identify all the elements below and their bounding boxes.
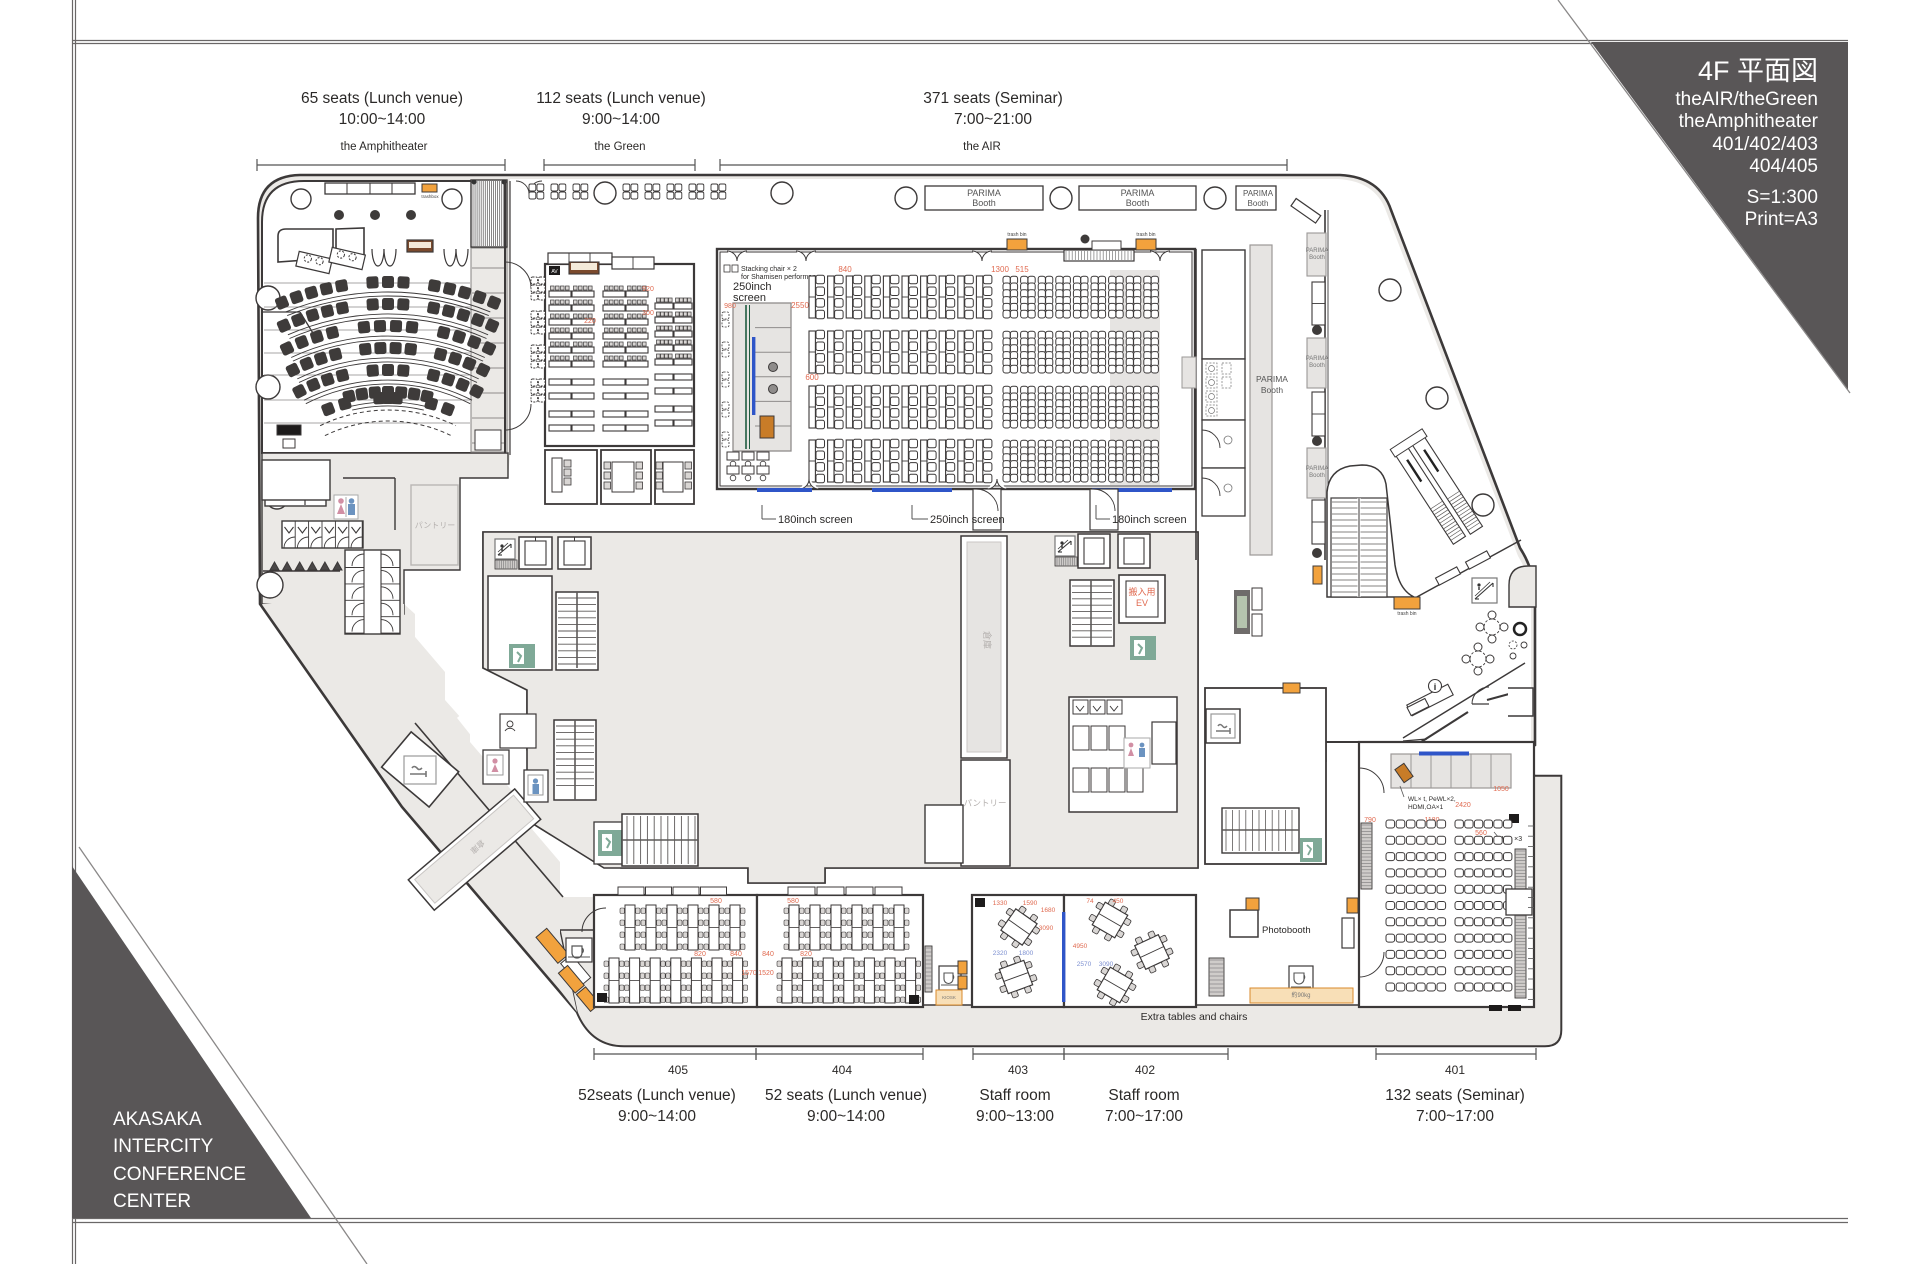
- svg-text:840: 840: [762, 951, 774, 958]
- svg-text:10:00~14:00: 10:00~14:00: [339, 111, 426, 128]
- svg-text:4950: 4950: [1073, 943, 1088, 950]
- svg-text:403: 403: [1008, 1063, 1028, 1077]
- svg-text:404/405: 404/405: [1749, 156, 1818, 177]
- svg-text:Stacking chair × 2: Stacking chair × 2: [741, 266, 797, 273]
- svg-text:Booth: Booth: [1309, 255, 1325, 261]
- svg-text:PARIMA: PARIMA: [1243, 189, 1274, 198]
- svg-text:9:00~14:00: 9:00~14:00: [618, 1108, 696, 1125]
- svg-text:trashbox: trashbox: [421, 194, 439, 199]
- svg-text:3090: 3090: [1039, 925, 1054, 932]
- svg-text:402: 402: [1135, 1063, 1155, 1077]
- svg-text:the Amphitheater: the Amphitheater: [341, 141, 428, 153]
- svg-text:倉庫: 倉庫: [982, 631, 993, 649]
- svg-text:2320: 2320: [993, 950, 1008, 957]
- svg-text:132 seats (Seminar): 132 seats (Seminar): [1385, 1087, 1525, 1104]
- svg-text:S=1:300: S=1:300: [1747, 187, 1818, 208]
- svg-text:EV: EV: [1136, 598, 1148, 608]
- svg-text:Booth: Booth: [972, 198, 996, 208]
- svg-text:401/402/403: 401/402/403: [1712, 134, 1818, 155]
- svg-text:パントリー: パントリー: [415, 521, 455, 530]
- svg-text:AKASAKA: AKASAKA: [113, 1109, 202, 1130]
- svg-text:1300: 1300: [991, 265, 1009, 274]
- svg-text:515: 515: [1015, 265, 1029, 274]
- svg-text:9:00~13:00: 9:00~13:00: [976, 1108, 1054, 1125]
- svg-text:7:00~21:00: 7:00~21:00: [954, 111, 1032, 128]
- svg-text:580: 580: [787, 898, 799, 905]
- svg-text:980: 980: [724, 303, 736, 310]
- svg-text:250inch screen: 250inch screen: [930, 514, 1005, 526]
- svg-text:screen: screen: [733, 292, 766, 304]
- svg-text:Booth: Booth: [1126, 198, 1150, 208]
- svg-text:1520: 1520: [758, 970, 774, 977]
- svg-text:3090: 3090: [1099, 961, 1114, 968]
- svg-text:trash bin: trash bin: [1397, 611, 1416, 617]
- svg-text:1590: 1590: [1023, 900, 1038, 907]
- svg-text:INTERCITY: INTERCITY: [113, 1136, 214, 1157]
- svg-text:1680: 1680: [1041, 907, 1056, 914]
- svg-text:PARIMA: PARIMA: [967, 188, 1001, 198]
- svg-text:Staff room: Staff room: [1108, 1087, 1179, 1104]
- svg-text:PARIMA: PARIMA: [1306, 356, 1329, 362]
- svg-text:Booth: Booth: [1261, 385, 1283, 395]
- svg-text:404: 404: [832, 1063, 852, 1077]
- svg-text:Booth: Booth: [1309, 473, 1325, 479]
- svg-text:820: 820: [694, 951, 706, 958]
- svg-text:PARIMA: PARIMA: [1256, 374, 1288, 384]
- svg-text:AV: AV: [551, 269, 558, 275]
- svg-text:1050: 1050: [1493, 786, 1509, 793]
- svg-text:401: 401: [1445, 1063, 1465, 1077]
- svg-text:PARIMA: PARIMA: [1306, 466, 1329, 472]
- svg-text:180inch screen: 180inch screen: [1112, 514, 1187, 526]
- svg-text:920: 920: [642, 286, 654, 293]
- svg-text:CONFERENCE: CONFERENCE: [113, 1164, 246, 1185]
- svg-text:7:00~17:00: 7:00~17:00: [1416, 1108, 1494, 1125]
- svg-text:74: 74: [1086, 898, 1094, 905]
- svg-text:112 seats (Lunch venue): 112 seats (Lunch venue): [536, 90, 705, 107]
- svg-text:4F 平面図: 4F 平面図: [1698, 56, 1818, 86]
- svg-text:2550: 2550: [791, 301, 809, 310]
- svg-text:theAmphitheater: theAmphitheater: [1679, 111, 1819, 132]
- svg-text:371 seats (Seminar): 371 seats (Seminar): [923, 90, 1063, 107]
- svg-text:2420: 2420: [1455, 802, 1471, 809]
- svg-text:the Green: the Green: [594, 141, 645, 153]
- svg-text:Booth: Booth: [1309, 363, 1325, 369]
- svg-text:300: 300: [642, 310, 654, 317]
- svg-text:HDMI,OA×1: HDMI,OA×1: [1408, 804, 1444, 811]
- svg-text:Print=A3: Print=A3: [1745, 209, 1818, 230]
- svg-text:7:00~17:00: 7:00~17:00: [1105, 1108, 1183, 1125]
- svg-text:trash bin: trash bin: [1136, 232, 1155, 238]
- svg-text:840: 840: [730, 951, 742, 958]
- svg-text:580: 580: [710, 898, 722, 905]
- svg-text:Photobooth: Photobooth: [1262, 925, 1311, 936]
- svg-text:52seats (Lunch venue): 52seats (Lunch venue): [578, 1087, 736, 1104]
- svg-text:1800: 1800: [1019, 950, 1034, 957]
- svg-text:2570: 2570: [1077, 961, 1092, 968]
- svg-text:WL× t, PeWL×2,: WL× t, PeWL×2,: [1408, 796, 1456, 803]
- svg-text:180inch screen: 180inch screen: [778, 514, 853, 526]
- svg-text:trash bin: trash bin: [1007, 232, 1026, 238]
- svg-text:Booth: Booth: [1248, 199, 1269, 208]
- svg-text:搬入用: 搬入用: [1128, 586, 1155, 597]
- svg-text:840: 840: [838, 265, 852, 274]
- svg-text:9:00~14:00: 9:00~14:00: [807, 1108, 885, 1125]
- svg-text:1330: 1330: [993, 900, 1008, 907]
- svg-text:パントリー: パントリー: [964, 798, 1007, 808]
- svg-text:KIOSK: KIOSK: [942, 995, 956, 1000]
- svg-text:220: 220: [584, 318, 596, 325]
- svg-text:450: 450: [1113, 898, 1124, 905]
- svg-text:the AIR: the AIR: [963, 141, 1001, 153]
- svg-text:約90kg: 約90kg: [1291, 991, 1310, 999]
- svg-text:52 seats (Lunch venue): 52 seats (Lunch venue): [765, 1087, 927, 1104]
- svg-text:820: 820: [800, 951, 812, 958]
- svg-text:Extra tables and chairs: Extra tables and chairs: [1141, 1011, 1248, 1023]
- svg-text:9:00~14:00: 9:00~14:00: [582, 111, 660, 128]
- svg-text:1570: 1570: [741, 970, 757, 977]
- svg-text:i: i: [1434, 682, 1437, 692]
- svg-text:PARIMA: PARIMA: [1121, 188, 1155, 198]
- svg-text:theAIR/theGreen: theAIR/theGreen: [1675, 89, 1818, 110]
- svg-text:CENTER: CENTER: [113, 1191, 191, 1212]
- svg-text:Staff room: Staff room: [979, 1087, 1050, 1104]
- svg-text:PARIMA: PARIMA: [1306, 248, 1329, 254]
- svg-text:65 seats (Lunch venue): 65 seats (Lunch venue): [301, 90, 463, 107]
- svg-text:600: 600: [805, 373, 819, 382]
- svg-text:405: 405: [668, 1063, 688, 1077]
